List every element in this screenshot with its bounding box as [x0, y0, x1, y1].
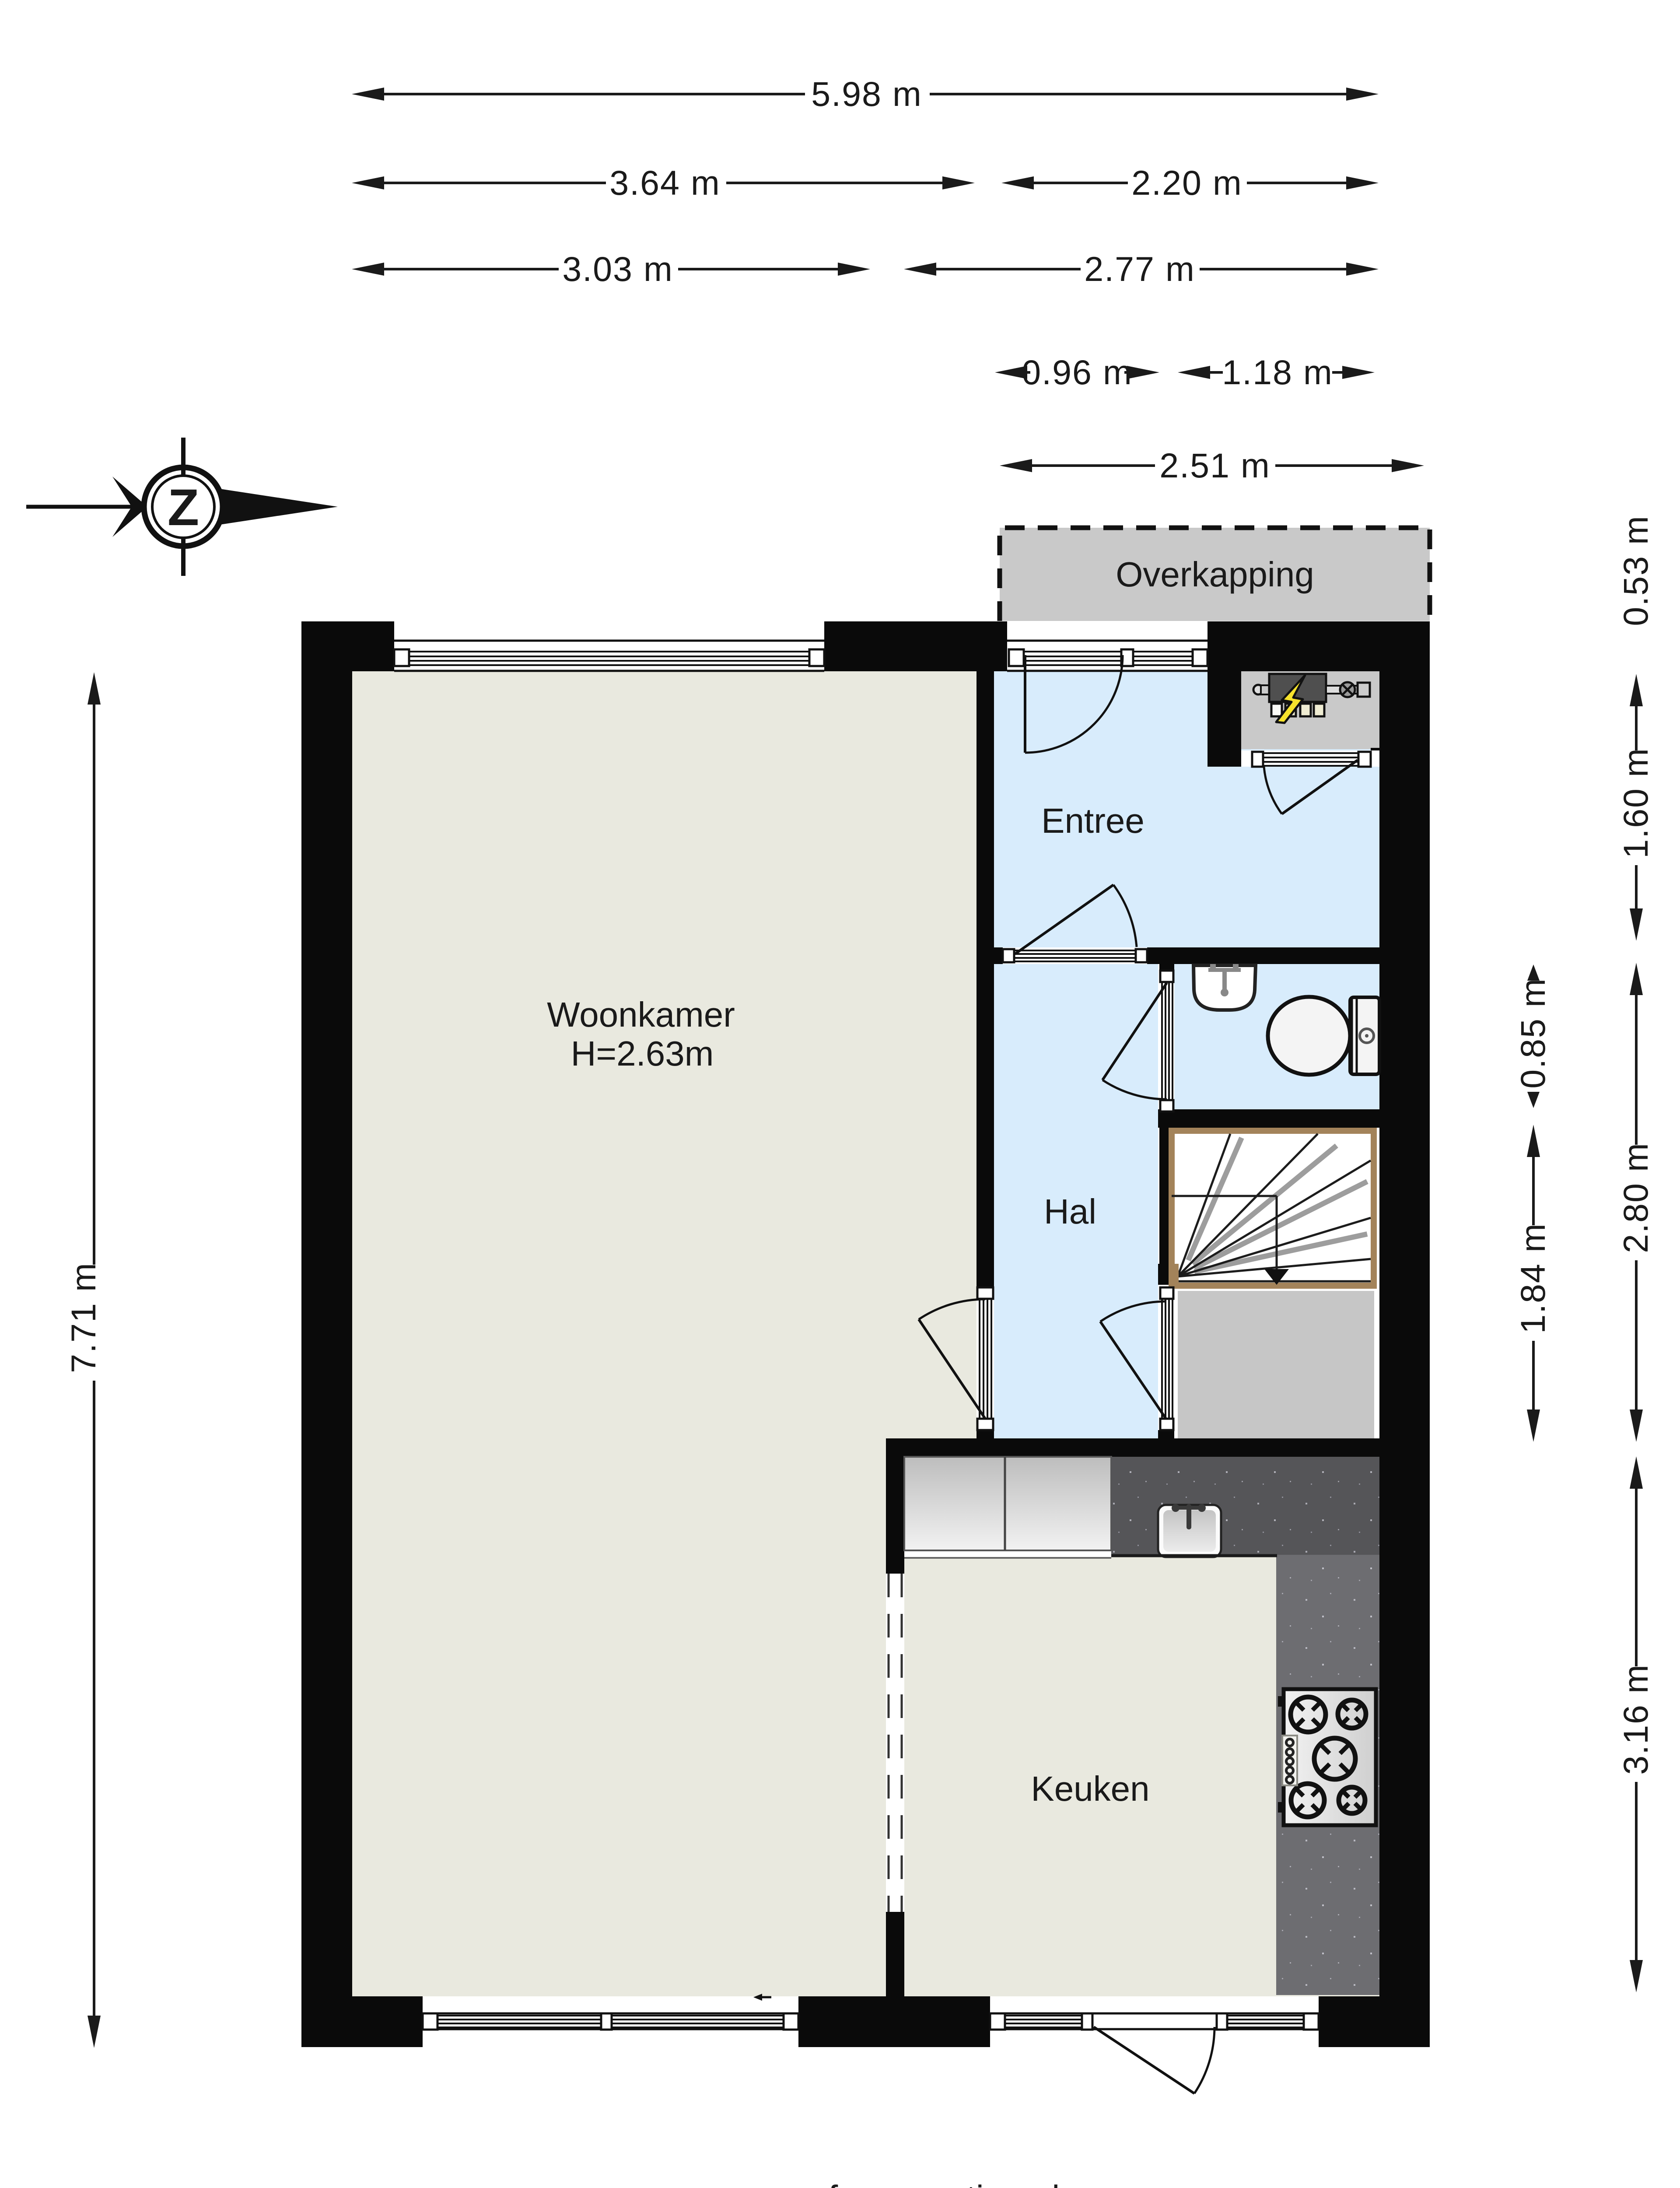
- svg-text:2.77 m: 2.77 m: [1084, 249, 1195, 288]
- svg-text:7.71 m: 7.71 m: [64, 1262, 103, 1373]
- svg-text:0.53 m: 0.53 m: [1616, 515, 1655, 626]
- svg-text:2.80 m: 2.80 m: [1616, 1142, 1655, 1253]
- svg-text:3.64 m: 3.64 m: [609, 163, 721, 202]
- svg-text:1.84 m: 1.84 m: [1513, 1223, 1552, 1334]
- svg-text:0.96 m: 0.96 m: [1022, 353, 1133, 392]
- svg-text:0.85 m: 0.85 m: [1513, 978, 1552, 1089]
- svg-text:5.98 m: 5.98 m: [811, 74, 922, 113]
- svg-text:Entree: Entree: [1041, 801, 1144, 840]
- svg-text:2.20 m: 2.20 m: [1131, 163, 1242, 202]
- svg-text:Hal: Hal: [1044, 1192, 1096, 1231]
- svg-text:1.18 m: 1.18 m: [1222, 353, 1333, 392]
- svg-text:2.51 m: 2.51 m: [1159, 446, 1270, 485]
- svg-text:H=2.63m: H=2.63m: [571, 1034, 714, 1073]
- svg-text:Keuken: Keuken: [1031, 1769, 1149, 1808]
- svg-text:3.03 m: 3.03 m: [562, 249, 673, 288]
- svg-text:1.60 m: 1.60 m: [1616, 747, 1655, 859]
- svg-text:Overkapping: Overkapping: [1116, 555, 1314, 594]
- svg-text:Z: Z: [168, 479, 199, 536]
- svg-text:www.framemotion.nl: www.framemotion.nl: [744, 2178, 1060, 2188]
- svg-text:3.16 m: 3.16 m: [1616, 1664, 1655, 1775]
- svg-text:Woonkamer: Woonkamer: [547, 995, 735, 1034]
